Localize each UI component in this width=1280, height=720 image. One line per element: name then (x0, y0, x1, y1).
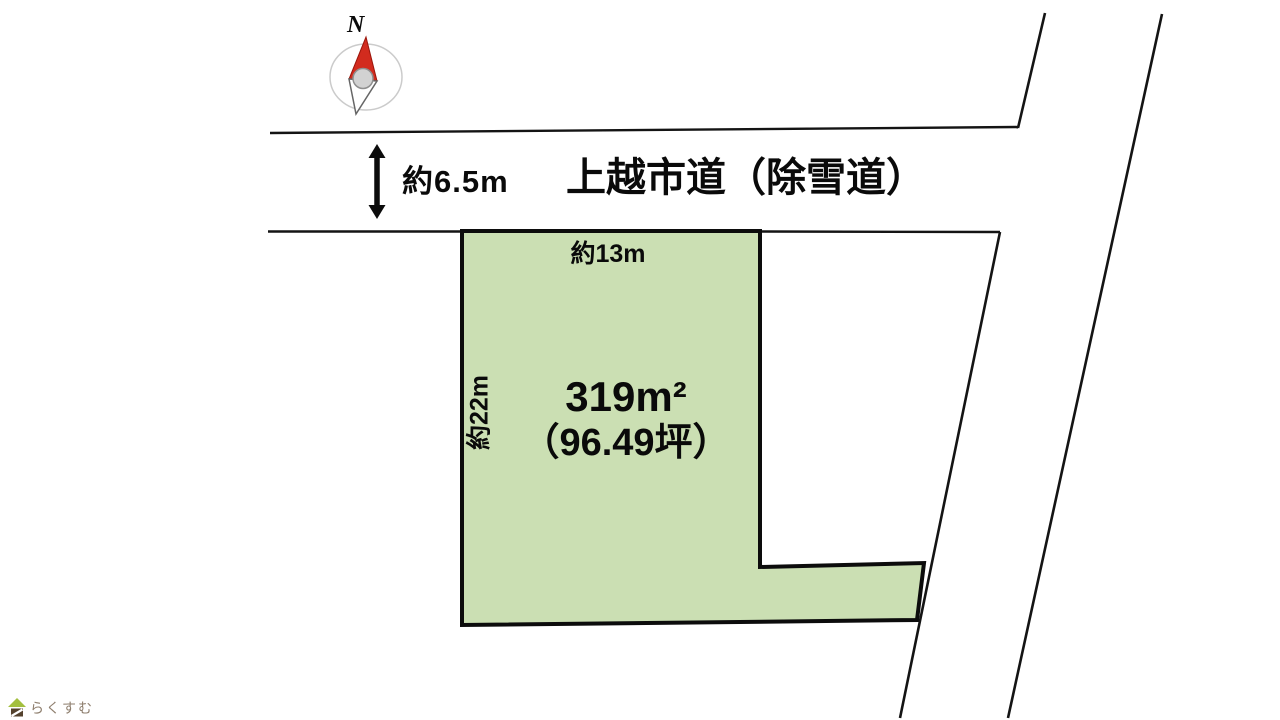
top-road-lower-edge-right-line (759, 232, 1000, 233)
compass-icon (330, 37, 402, 114)
arrow-head-up (369, 144, 386, 158)
diagram-canvas (0, 0, 1280, 720)
area-tsubo-text: （96.49坪） (476, 420, 776, 466)
logo-house-icon (8, 698, 26, 717)
logo-text: らくすむ (30, 699, 94, 717)
rakusumu-logo: らくすむ (8, 698, 94, 717)
compass-center-pin (353, 69, 373, 89)
top-road-upper-edge-line (270, 127, 1018, 133)
plot-area-label: 319m² （96.49坪） (476, 374, 776, 466)
side-road-right-edge-line (1008, 14, 1162, 718)
side-road-left-edge-lower-line (900, 232, 1000, 718)
logo-roof-shape (8, 698, 26, 707)
side-road-left-edge-upper-line (1018, 13, 1045, 128)
road-width-arrow-icon (369, 144, 386, 219)
arrow-head-down (369, 205, 386, 219)
frontage-dimension-label: 約13m (558, 240, 658, 268)
road-width-label: 約6.5m (402, 162, 509, 202)
compass-north-label: N (347, 12, 364, 39)
area-sqm-text: 319m² (476, 374, 776, 420)
land-plot-diagram: N 約6.5m 上越市道（除雪道） 約13m 約22m 319m² （96.49… (0, 0, 1280, 720)
road-name-label: 上越市道（除雪道） (560, 152, 932, 204)
